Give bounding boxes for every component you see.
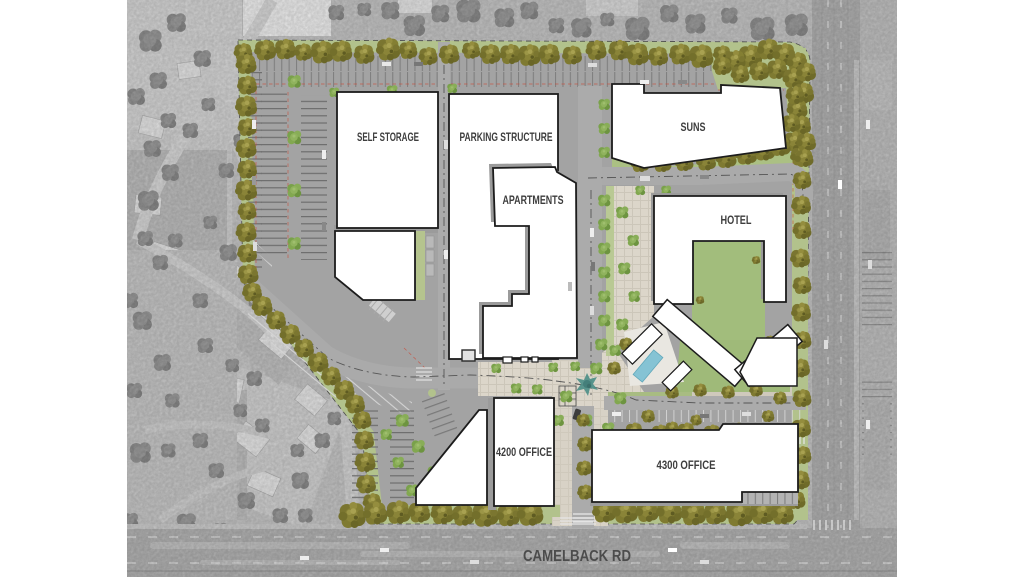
- svg-text:HOTEL: HOTEL: [721, 213, 752, 227]
- svg-text:SELF STORAGE: SELF STORAGE: [357, 130, 419, 144]
- svg-text:APARTMENTS: APARTMENTS: [503, 193, 564, 207]
- svg-text:CAMELBACK RD: CAMELBACK RD: [523, 548, 631, 565]
- svg-text:SUNS: SUNS: [681, 120, 706, 134]
- svg-text:4200 OFFICE: 4200 OFFICE: [496, 445, 552, 459]
- svg-text:4300 OFFICE: 4300 OFFICE: [657, 458, 716, 472]
- svg-text:PARKING STRUCTURE: PARKING STRUCTURE: [460, 130, 553, 144]
